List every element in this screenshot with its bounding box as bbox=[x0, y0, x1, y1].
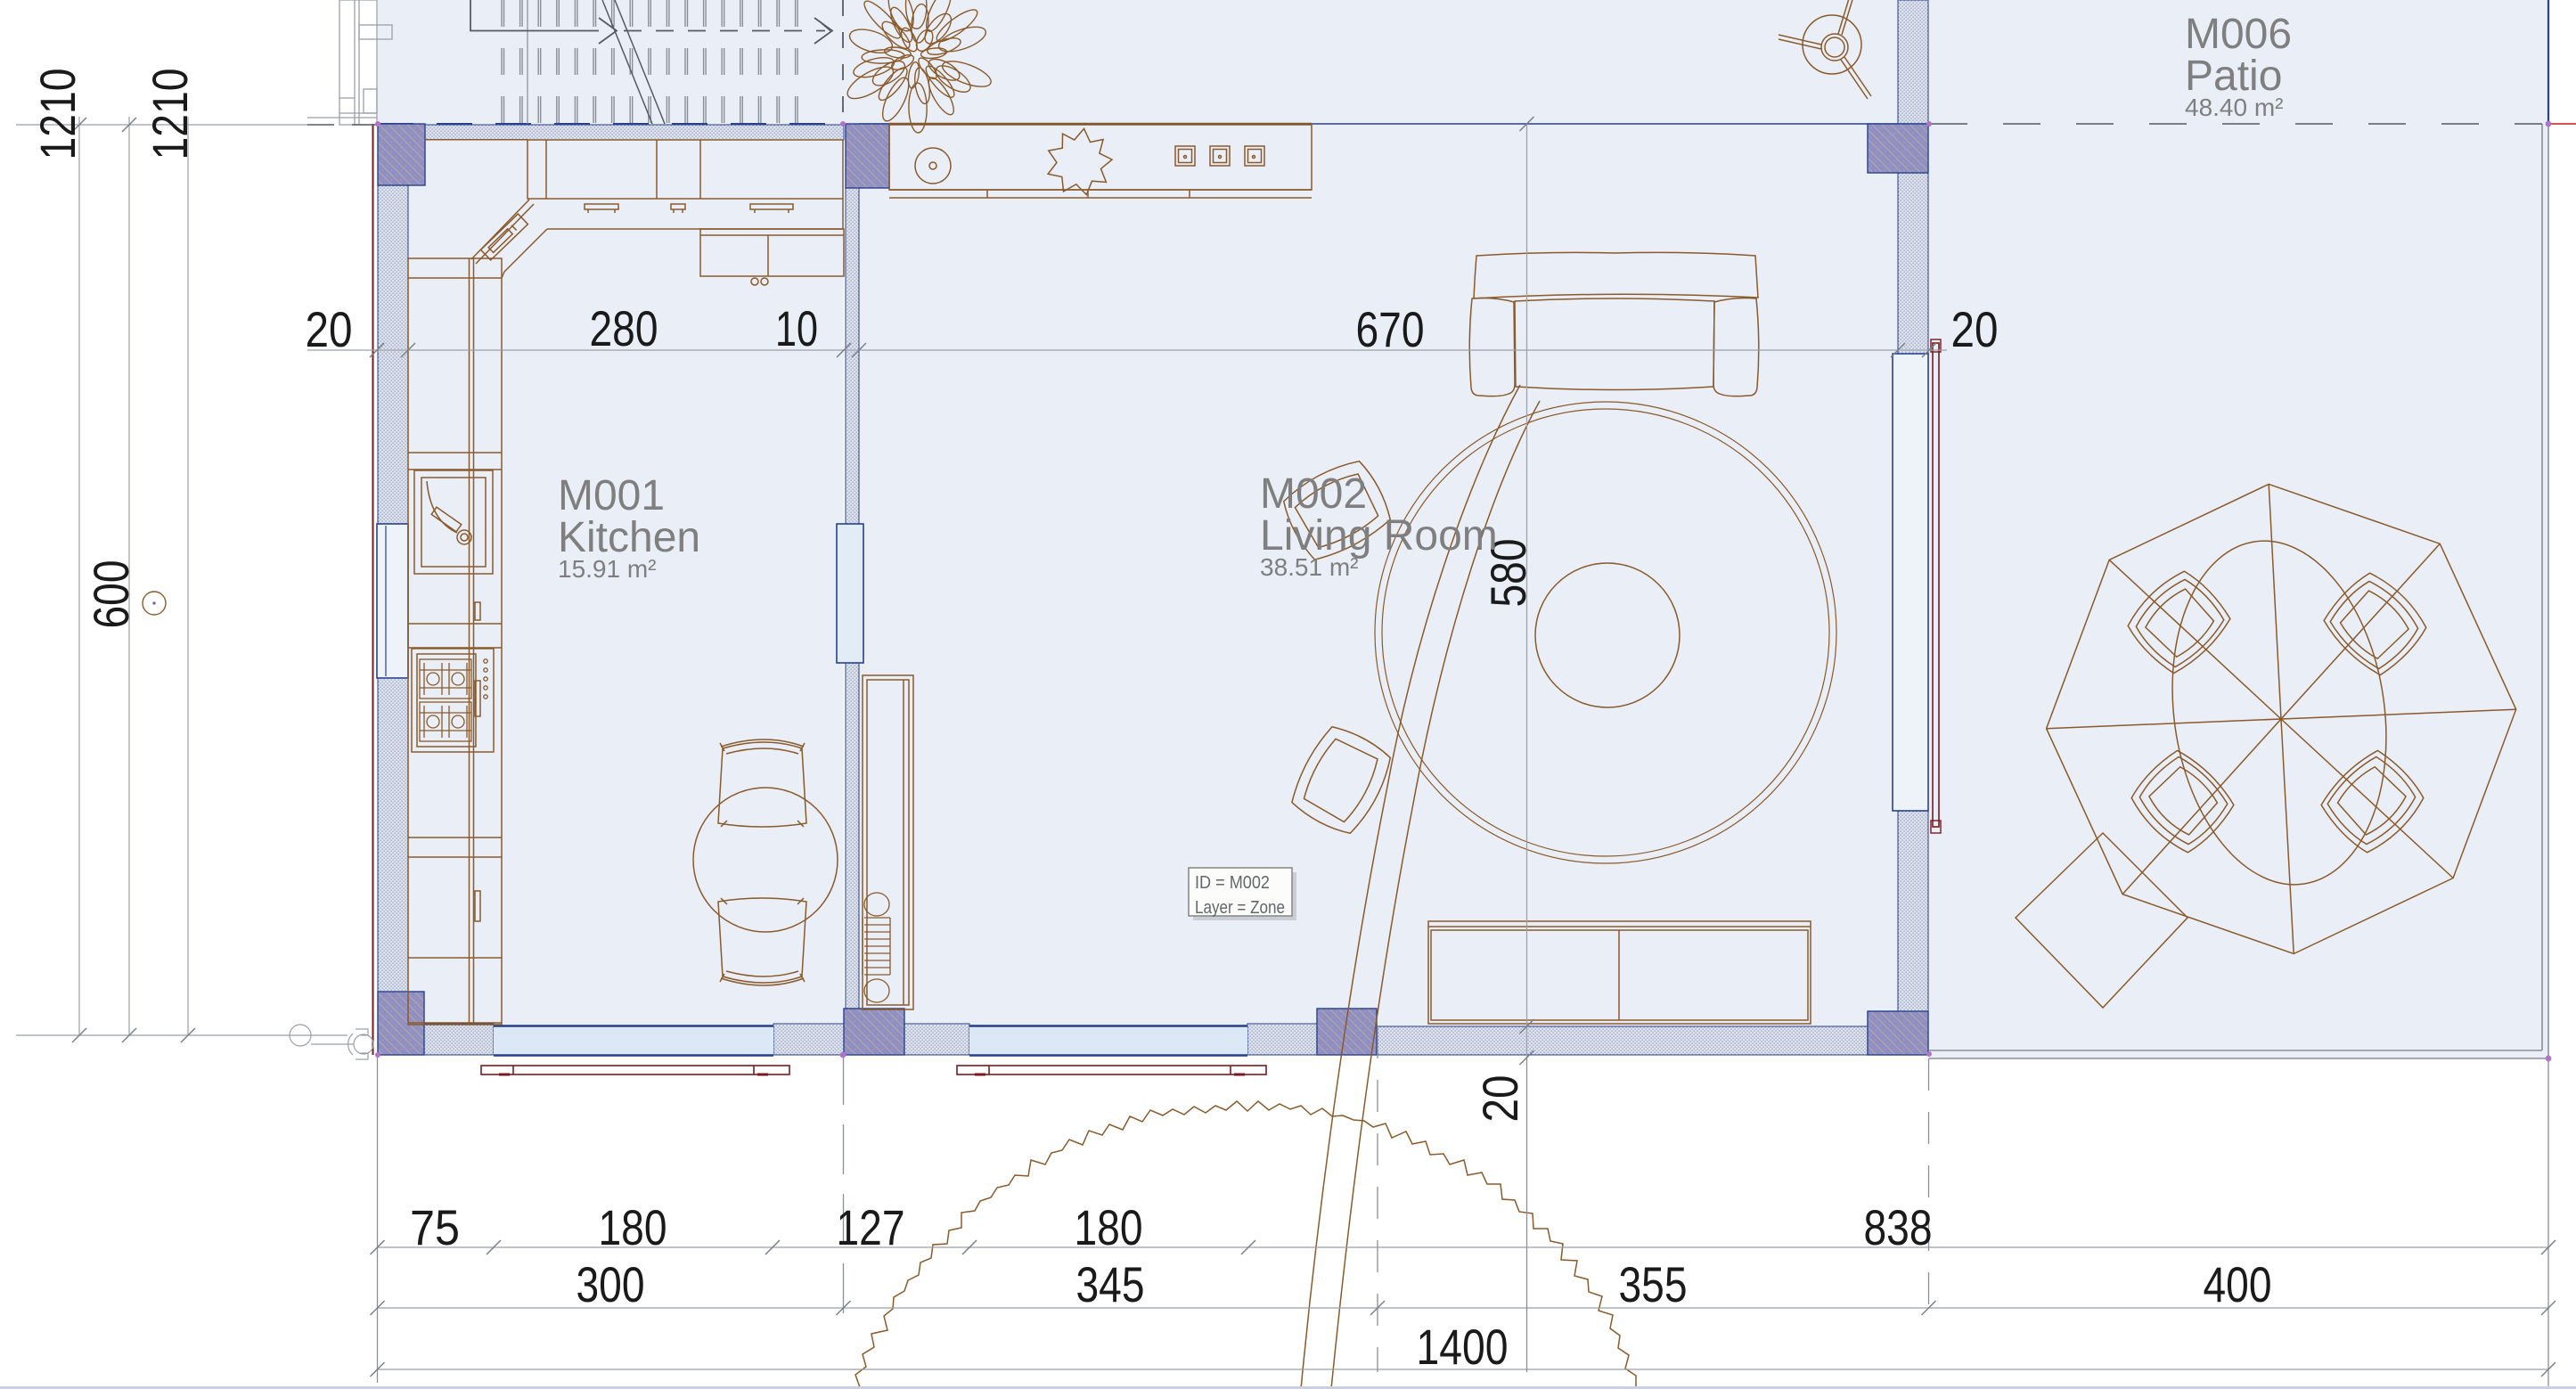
svg-text:345: 345 bbox=[1076, 1256, 1145, 1312]
svg-text:10: 10 bbox=[775, 300, 818, 356]
svg-text:1210: 1210 bbox=[142, 69, 198, 160]
svg-text:1400: 1400 bbox=[1417, 1319, 1509, 1375]
svg-text:1210: 1210 bbox=[29, 69, 86, 160]
svg-text:48.40 m²: 48.40 m² bbox=[2185, 94, 2284, 121]
svg-text:M001: M001 bbox=[558, 472, 665, 519]
svg-text:670: 670 bbox=[1356, 301, 1425, 357]
svg-text:180: 180 bbox=[1075, 1199, 1143, 1255]
svg-text:400: 400 bbox=[2204, 1256, 2272, 1312]
svg-text:127: 127 bbox=[837, 1199, 905, 1255]
svg-text:838: 838 bbox=[1864, 1199, 1933, 1255]
svg-text:38.51 m²: 38.51 m² bbox=[1260, 553, 1359, 581]
svg-text:Layer = Zone: Layer = Zone bbox=[1195, 898, 1285, 918]
svg-text:20: 20 bbox=[1472, 1075, 1528, 1123]
svg-text:15.91 m²: 15.91 m² bbox=[558, 555, 657, 583]
svg-text:M006: M006 bbox=[2185, 11, 2292, 58]
svg-text:180: 180 bbox=[599, 1199, 667, 1255]
svg-text:ID = M002: ID = M002 bbox=[1195, 873, 1270, 893]
svg-text:20: 20 bbox=[306, 301, 353, 357]
svg-text:300: 300 bbox=[577, 1256, 645, 1312]
svg-text:355: 355 bbox=[1619, 1256, 1688, 1312]
svg-text:280: 280 bbox=[590, 300, 658, 356]
svg-text:75: 75 bbox=[410, 1199, 460, 1255]
svg-text:M002: M002 bbox=[1260, 470, 1367, 518]
svg-text:20: 20 bbox=[1951, 301, 1999, 357]
svg-text:600: 600 bbox=[83, 560, 139, 629]
